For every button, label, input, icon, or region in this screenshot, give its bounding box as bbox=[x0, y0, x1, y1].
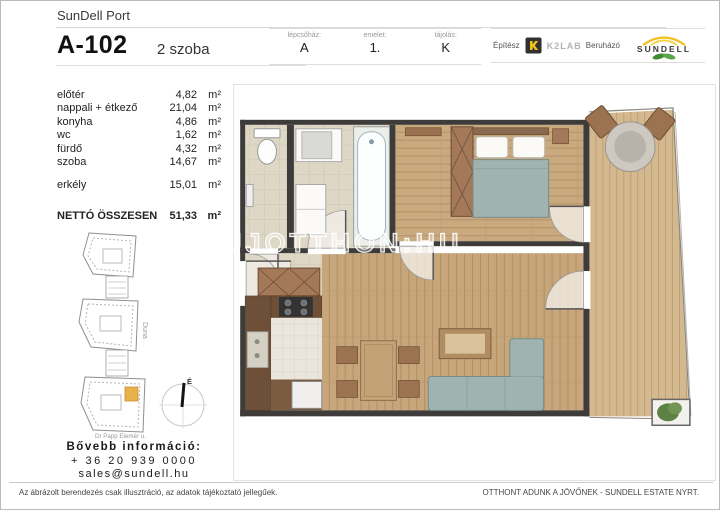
room-name: konyha bbox=[57, 116, 159, 129]
k2lab-logo-icon bbox=[525, 37, 542, 54]
developer-group: Beruházó SUNDELL bbox=[586, 30, 703, 61]
info-staircase: lépcsőház: A bbox=[269, 29, 340, 64]
floor-plan-drawing bbox=[234, 85, 715, 480]
room-unit: m² bbox=[197, 102, 221, 115]
room-area: 14,67 bbox=[159, 156, 197, 169]
rug-icon bbox=[439, 329, 491, 359]
floor-plan bbox=[233, 84, 716, 481]
developer-label: Beruházó bbox=[586, 41, 620, 50]
room-unit: m² bbox=[197, 156, 221, 169]
table-row: konyha 4,86 m² bbox=[57, 116, 221, 129]
architect-name: K2LAB bbox=[547, 41, 582, 51]
north-compass-icon: É bbox=[159, 377, 207, 428]
brand-box: Építész K2LAB Beruházó SUNDELL bbox=[491, 28, 705, 63]
contact-block: Bővebb információ: + 36 20 939 0000 sale… bbox=[39, 441, 229, 480]
project-title: SunDell Port bbox=[57, 8, 130, 23]
kitchen-sink-icon bbox=[247, 332, 268, 368]
compass-label: É bbox=[187, 377, 192, 386]
hall-wardrobe-icon bbox=[258, 268, 320, 296]
room-unit: m² bbox=[197, 89, 221, 102]
unit-id: A-102 bbox=[57, 31, 128, 60]
contact-email[interactable]: sales@sundell.hu bbox=[39, 468, 229, 480]
site-walkway-1 bbox=[106, 276, 128, 298]
unit-type: 2 szoba bbox=[157, 41, 210, 58]
table-row: fürdő 4,32 m² bbox=[57, 143, 221, 156]
plant-icon bbox=[652, 399, 690, 425]
info-orientation: tájolás: K bbox=[410, 29, 481, 64]
room-area: 4,32 bbox=[159, 143, 197, 156]
room-unit: m² bbox=[197, 129, 221, 142]
site-plan: Duna É Dr Papp Elemér u. bbox=[53, 227, 219, 441]
unit-divider bbox=[56, 65, 306, 66]
staircase-label: lépcsőház: bbox=[269, 32, 340, 39]
wardrobe-icon bbox=[451, 127, 473, 217]
room-name: nappali + étkező bbox=[57, 102, 159, 115]
company-slogan: OTTHONT ADUNK A JÖVŐNEK - SUNDELL ESTATE… bbox=[483, 488, 700, 497]
room-area: 4,82 bbox=[159, 89, 197, 102]
room-name: előtér bbox=[57, 89, 159, 102]
bedroom-shelf-icon bbox=[405, 128, 441, 136]
floor-label: emelet: bbox=[340, 32, 411, 39]
sundell-logo-icon: SUNDELL bbox=[625, 30, 703, 61]
room-area: 1,62 bbox=[159, 129, 197, 142]
nightstand-icon bbox=[553, 129, 569, 144]
room-unit: m² bbox=[197, 210, 221, 223]
table-row: nappali + étkező 21,04 m² bbox=[57, 102, 221, 115]
unit-info-box: lépcsőház: A emelet: 1. tájolás: K bbox=[269, 28, 481, 65]
river-label: Duna bbox=[141, 322, 148, 339]
site-building-2 bbox=[79, 299, 138, 351]
contact-phone: + 36 20 939 0000 bbox=[39, 455, 229, 467]
site-building-3 bbox=[81, 377, 145, 432]
table-row: előtér 4,82 m² bbox=[57, 89, 221, 102]
total-row: NETTÓ ÖSSZESEN 51,33 m² bbox=[57, 210, 221, 223]
wc-basin-icon bbox=[246, 184, 253, 206]
room-name: fürdő bbox=[57, 143, 159, 156]
staircase-value: A bbox=[269, 40, 340, 55]
highlighted-unit-marker bbox=[125, 387, 138, 401]
room-area: 21,04 bbox=[159, 102, 197, 115]
disclaimer-text: Az ábrázolt berendezés csak illusztráció… bbox=[19, 488, 277, 497]
orientation-value: K bbox=[410, 40, 481, 55]
architect-label: Építész bbox=[493, 41, 520, 50]
site-walkway-2 bbox=[106, 350, 128, 376]
room-area: 15,01 bbox=[159, 179, 197, 192]
site-building-1 bbox=[83, 233, 136, 277]
room-unit: m² bbox=[197, 143, 221, 156]
room-area-table: előtér 4,82 m² nappali + étkező 21,04 m²… bbox=[57, 89, 221, 223]
bathroom-sink-icon bbox=[296, 129, 342, 162]
bathroom-cabinet-icon bbox=[296, 184, 326, 234]
balcony-row: erkély 15,01 m² bbox=[57, 179, 221, 192]
developer-name: SUNDELL bbox=[637, 44, 691, 54]
room-area: 4,86 bbox=[159, 116, 197, 129]
orientation-label: tájolás: bbox=[410, 32, 481, 39]
fridge-icon bbox=[292, 381, 322, 408]
footer-divider bbox=[9, 482, 713, 483]
contact-heading: Bővebb információ: bbox=[39, 441, 229, 453]
room-name: szoba bbox=[57, 156, 159, 169]
total-label: NETTÓ ÖSSZESEN bbox=[57, 210, 159, 223]
total-area: 51,33 bbox=[159, 210, 197, 223]
floor-value: 1. bbox=[340, 40, 411, 55]
room-name: erkély bbox=[57, 179, 159, 192]
room-unit: m² bbox=[197, 116, 221, 129]
table-row: szoba 14,67 m² bbox=[57, 156, 221, 169]
stove-icon bbox=[279, 297, 313, 317]
bathtub-icon bbox=[354, 127, 390, 246]
brochure-page: SunDell Port A-102 2 szoba lépcsőház: A … bbox=[0, 0, 720, 510]
info-floor: emelet: 1. bbox=[340, 29, 411, 64]
architect-group: Építész K2LAB bbox=[493, 37, 582, 54]
room-unit: m² bbox=[197, 179, 221, 192]
street-label: Dr Papp Elemér u. bbox=[95, 433, 146, 440]
room-name: wc bbox=[57, 129, 159, 142]
table-row: wc 1,62 m² bbox=[57, 129, 221, 142]
kitchen bbox=[245, 296, 322, 410]
